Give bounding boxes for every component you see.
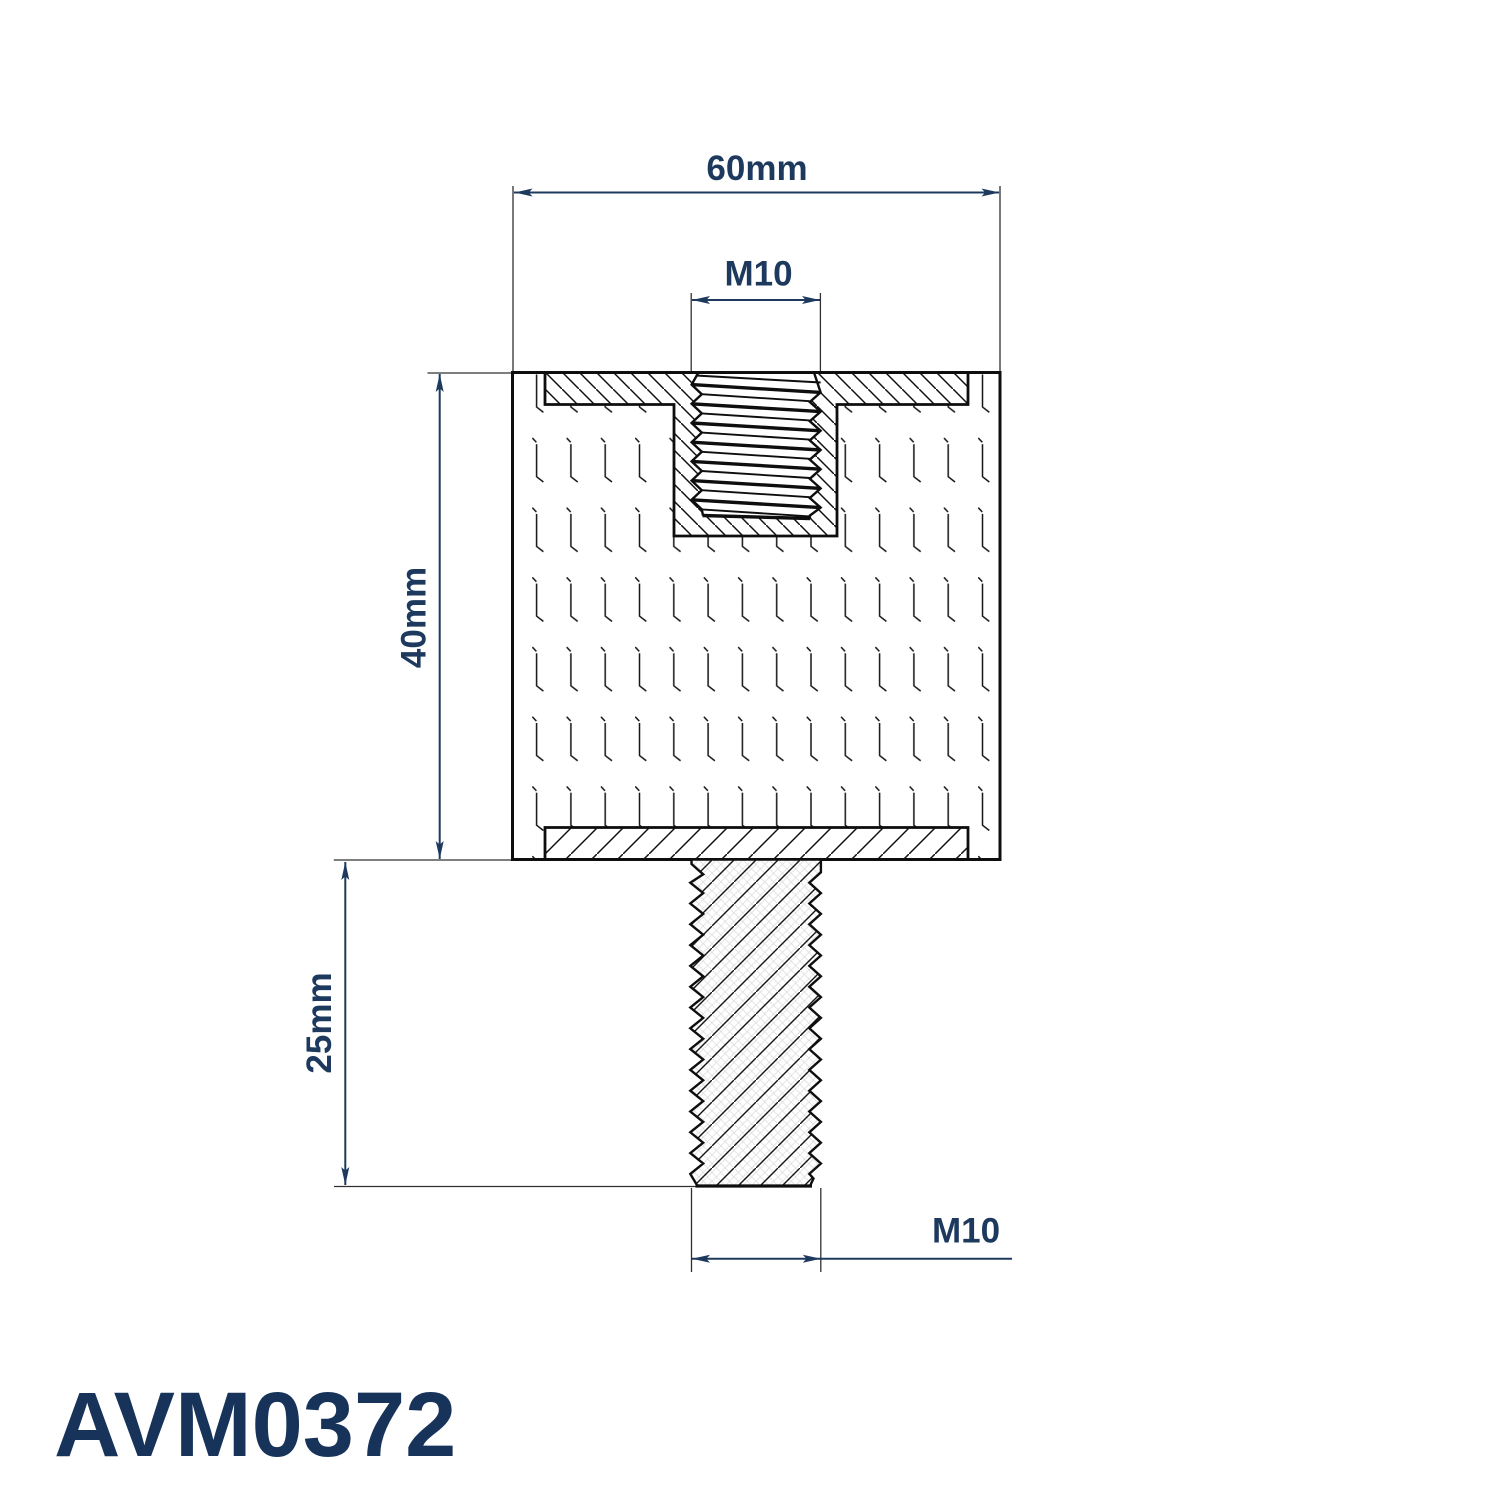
svg-text:60mm: 60mm	[706, 149, 807, 188]
svg-text:M10: M10	[724, 255, 792, 294]
svg-text:AVM0372: AVM0372	[54, 1374, 456, 1476]
svg-text:M10: M10	[932, 1212, 1000, 1251]
svg-text:25mm: 25mm	[300, 972, 339, 1073]
svg-text:40mm: 40mm	[395, 567, 434, 668]
